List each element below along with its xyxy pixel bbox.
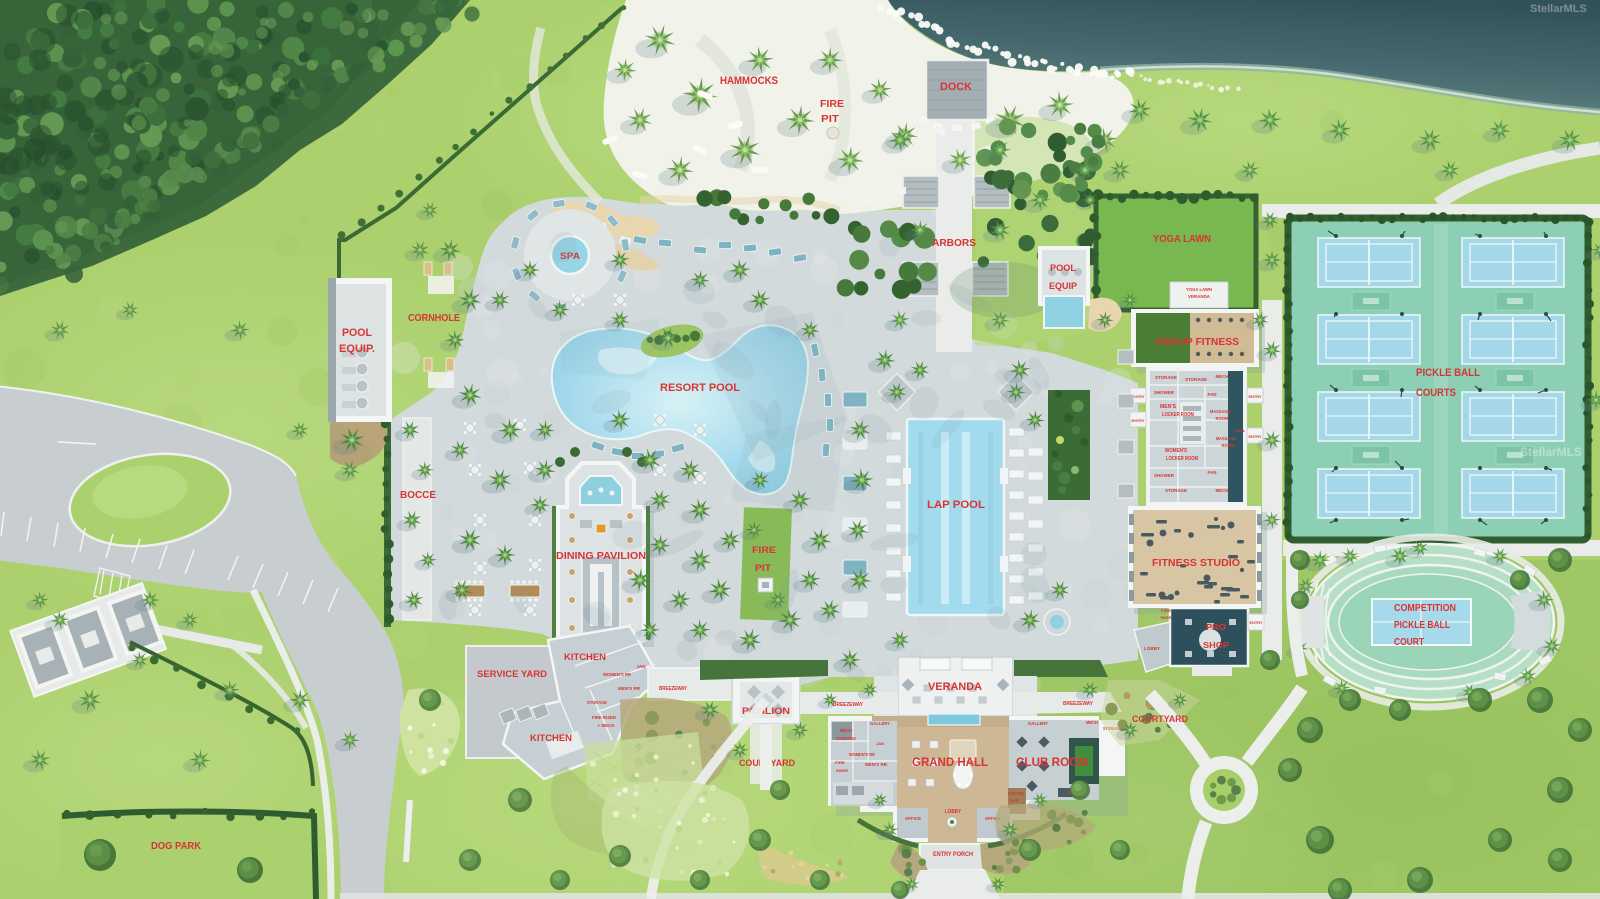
svg-text:FIRE: FIRE xyxy=(752,545,776,555)
svg-text:VERANDA: VERANDA xyxy=(1188,294,1211,299)
svg-text:VERANDA: VERANDA xyxy=(928,681,982,693)
svg-text:StellarMLS: StellarMLS xyxy=(1530,3,1587,15)
svg-text:COURTYARD: COURTYARD xyxy=(1132,714,1188,725)
svg-text:LAP POOL: LAP POOL xyxy=(927,499,985,511)
svg-text:YOGA LAWN: YOGA LAWN xyxy=(1153,234,1211,245)
svg-text:BREEZEWAY: BREEZEWAY xyxy=(833,702,864,708)
svg-text:PRO: PRO xyxy=(1206,622,1226,632)
svg-text:KITCHEN: KITCHEN xyxy=(564,652,606,663)
svg-text:FIRE RISER: FIRE RISER xyxy=(592,715,617,720)
svg-text:DINING PAVILION: DINING PAVILION xyxy=(556,550,646,562)
svg-text:LOCKER ROOM: LOCKER ROOM xyxy=(1166,456,1198,462)
svg-text:WOMEN'S RR: WOMEN'S RR xyxy=(603,672,632,677)
svg-text:STORAGE: STORAGE xyxy=(1185,377,1207,382)
svg-text:StellarMLS: StellarMLS xyxy=(1520,445,1582,459)
svg-text:FIRE: FIRE xyxy=(820,99,844,110)
svg-text:MEN'S: MEN'S xyxy=(1160,404,1177,410)
svg-text:MECH: MECH xyxy=(1086,720,1098,725)
svg-text:ENTRY: ENTRY xyxy=(1249,435,1262,439)
svg-text:STORAGE: STORAGE xyxy=(1165,488,1187,493)
svg-text:POOL: POOL xyxy=(1050,263,1076,273)
svg-text:MECH: MECH xyxy=(840,728,852,733)
svg-text:ROOM: ROOM xyxy=(1222,443,1235,448)
svg-text:EQUIP.: EQUIP. xyxy=(339,343,375,355)
svg-text:OFFICE: OFFICE xyxy=(905,816,921,821)
svg-text:JAN: JAN xyxy=(637,664,646,669)
svg-text:LOBBY: LOBBY xyxy=(945,809,962,815)
svg-text:GROUP FITNESS: GROUP FITNESS xyxy=(1155,336,1239,348)
svg-text:ENTRY PORCH: ENTRY PORCH xyxy=(933,852,973,858)
svg-text:FITNESS STUDIO: FITNESS STUDIO xyxy=(1152,557,1240,569)
svg-text:CORNHOLE: CORNHOLE xyxy=(408,313,460,324)
svg-text:COMPETITION: COMPETITION xyxy=(1394,603,1456,614)
svg-text:SERVICE YARD: SERVICE YARD xyxy=(477,669,547,680)
svg-text:SHOP: SHOP xyxy=(1203,640,1229,650)
svg-text:PIT: PIT xyxy=(821,114,839,125)
svg-text:RISER: RISER xyxy=(836,768,848,773)
svg-text:GALLERY: GALLERY xyxy=(1028,721,1048,726)
svg-text:KITCHEN: KITCHEN xyxy=(530,733,572,744)
svg-text:STORAGE: STORAGE xyxy=(836,736,856,741)
svg-text:FAN: FAN xyxy=(1208,470,1217,475)
svg-text:MEN'S RR: MEN'S RR xyxy=(865,762,888,767)
svg-text:WOMEN'S RR: WOMEN'S RR xyxy=(849,752,876,757)
svg-text:SHOWER: SHOWER xyxy=(1154,473,1175,478)
svg-text:+ MECH: + MECH xyxy=(598,723,615,728)
svg-text:DOG PARK: DOG PARK xyxy=(151,841,202,852)
svg-text:FIRE: FIRE xyxy=(835,760,845,765)
svg-text:ENTRY: ENTRY xyxy=(1250,621,1263,625)
svg-text:BOCCE: BOCCE xyxy=(400,490,436,501)
svg-text:FIRE: FIRE xyxy=(1161,609,1172,613)
svg-text:GALLERY: GALLERY xyxy=(870,721,890,726)
svg-text:ENTRY: ENTRY xyxy=(1132,419,1145,423)
svg-text:DOCK: DOCK xyxy=(940,81,972,93)
svg-text:ROOM: ROOM xyxy=(1216,416,1229,421)
svg-text:SHOWER: SHOWER xyxy=(1154,390,1175,395)
svg-text:COURTS: COURTS xyxy=(1416,387,1456,399)
svg-text:HALL: HALL xyxy=(1235,429,1246,433)
svg-text:BAR: BAR xyxy=(1010,798,1019,803)
svg-text:MECH: MECH xyxy=(1216,488,1229,493)
svg-text:MECH: MECH xyxy=(1216,374,1229,379)
svg-text:JAN: JAN xyxy=(876,741,884,746)
svg-text:STORAGE: STORAGE xyxy=(587,700,607,705)
svg-text:FAN: FAN xyxy=(1208,392,1217,397)
svg-text:ENTRY: ENTRY xyxy=(1249,395,1262,399)
svg-text:GRAND HALL: GRAND HALL xyxy=(912,757,988,769)
svg-text:YOGA LAWN: YOGA LAWN xyxy=(1186,287,1212,292)
svg-text:RISER: RISER xyxy=(1161,616,1172,620)
svg-text:PICKLE BALL: PICKLE BALL xyxy=(1416,367,1480,379)
svg-text:EQUIP: EQUIP xyxy=(1049,281,1077,291)
svg-text:ARBORS: ARBORS xyxy=(932,238,976,249)
svg-text:BREEZEWAY: BREEZEWAY xyxy=(659,686,688,692)
svg-text:CLUB ROOM: CLUB ROOM xyxy=(1016,757,1088,769)
svg-text:STORAGE: STORAGE xyxy=(1155,375,1177,380)
svg-text:MASSAGE: MASSAGE xyxy=(1216,436,1236,441)
svg-text:MASSAGE: MASSAGE xyxy=(1210,409,1230,414)
svg-text:LOCKER ROOM: LOCKER ROOM xyxy=(1162,412,1194,418)
svg-text:WOMEN'S: WOMEN'S xyxy=(1165,448,1188,454)
svg-text:POOL: POOL xyxy=(342,327,372,339)
svg-text:RESORT POOL: RESORT POOL xyxy=(660,382,740,394)
svg-text:HAMMOCKS: HAMMOCKS xyxy=(720,75,778,87)
svg-text:MEN'S RR: MEN'S RR xyxy=(618,686,641,691)
svg-text:COURT: COURT xyxy=(1394,637,1424,648)
svg-text:LOBBY: LOBBY xyxy=(1144,646,1160,651)
svg-text:BREEZEWAY: BREEZEWAY xyxy=(1063,701,1094,707)
svg-text:PIT: PIT xyxy=(755,563,772,573)
svg-text:PICKLE BALL: PICKLE BALL xyxy=(1394,620,1450,631)
svg-text:COFFEE: COFFEE xyxy=(1008,791,1024,796)
